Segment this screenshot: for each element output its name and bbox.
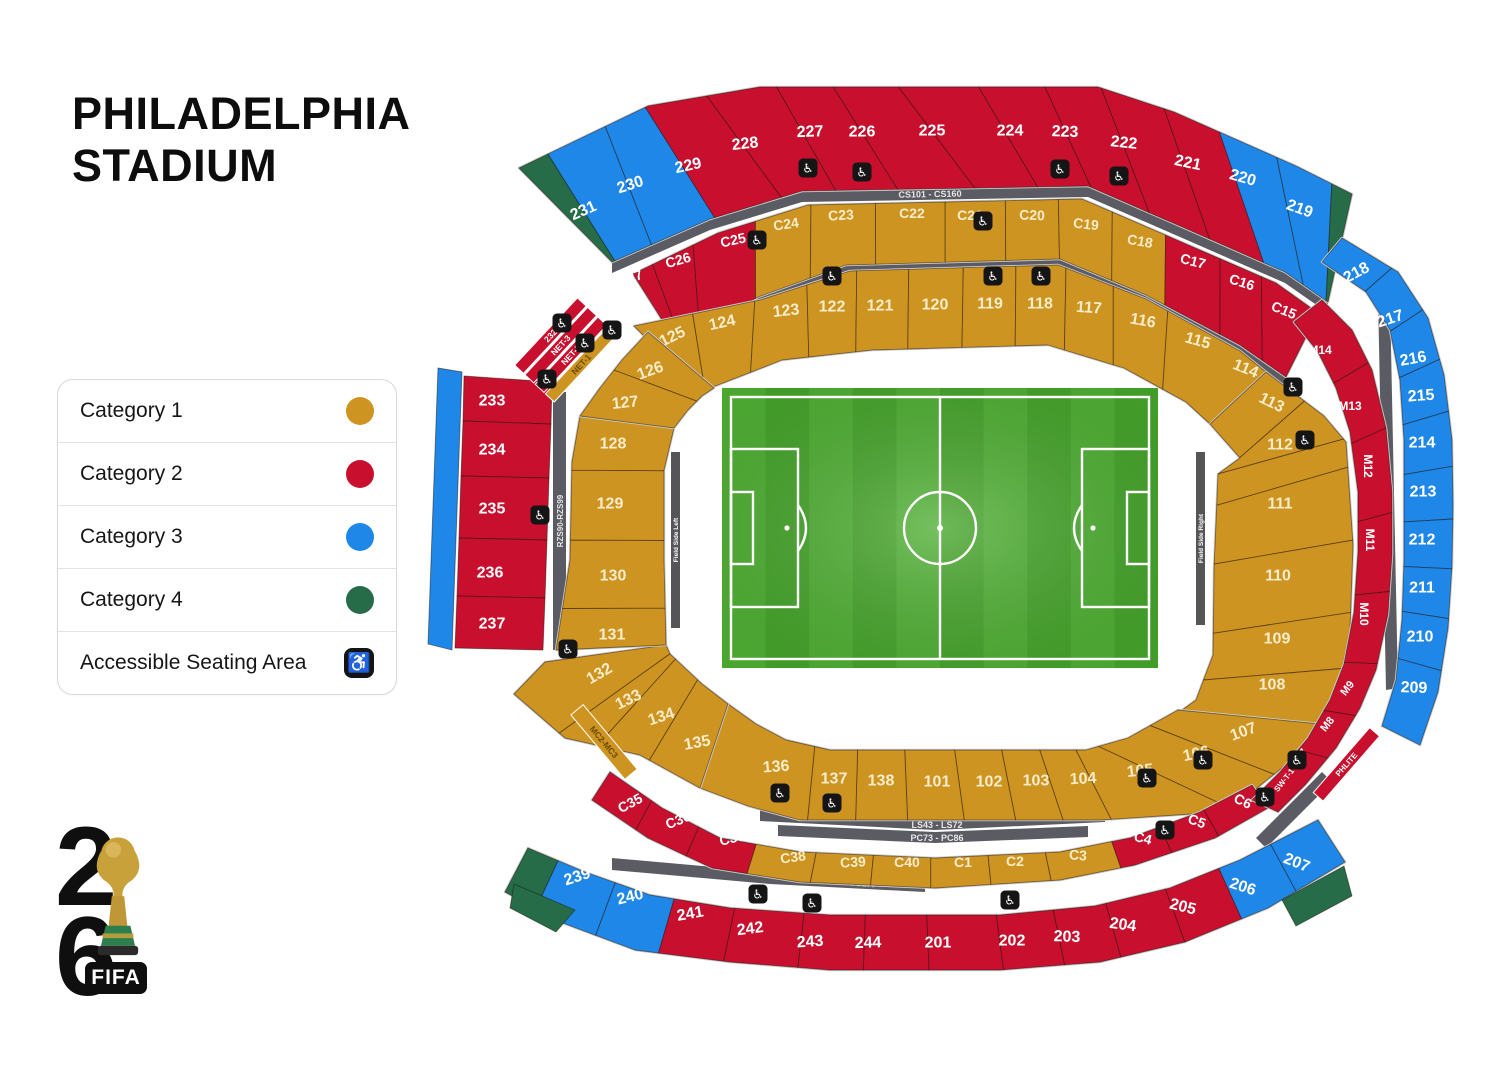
svg-text:♿: ♿ [1197, 753, 1208, 768]
section-label: 242 [736, 919, 765, 939]
accessible-seating-icon: ♿ [559, 640, 578, 659]
section-label: M10 [1357, 602, 1371, 626]
section-label: 130 [600, 568, 627, 585]
svg-text:♿: ♿ [1141, 771, 1152, 786]
svg-text:♿: ♿ [826, 269, 837, 284]
legend-item-category-3: Category 3 [58, 506, 396, 569]
legend-label: Category 3 [80, 525, 183, 549]
section-label: 227 [796, 123, 823, 141]
section-label: 101 [924, 774, 951, 791]
section-label: 222 [1110, 133, 1138, 153]
legend-label: Category 4 [80, 588, 183, 612]
section-label: C3 [1069, 846, 1088, 863]
accessible-seating-icon: ♿ [1284, 378, 1303, 397]
accessible-seating-icon: ♿ [1110, 167, 1129, 186]
svg-text:♿: ♿ [987, 269, 998, 284]
accessible-seating-icon: ♿ [1194, 751, 1213, 770]
section-label: 233 [479, 393, 506, 410]
accessible-seating-icon: ♿ [1156, 821, 1175, 840]
section-label: M14 [1308, 343, 1332, 357]
legend-item-category-2: Category 2 [58, 443, 396, 506]
legend-item-category-4: Category 4 [58, 569, 396, 632]
section-label: 104 [1069, 770, 1097, 788]
section-M11[interactable] [1355, 513, 1392, 596]
section-label: 214 [1409, 435, 1436, 452]
accessible-seating-icon: ♿ [803, 894, 822, 913]
accessible-seating-icon: ♿ [823, 794, 842, 813]
section-label: 212 [1409, 532, 1436, 549]
legend-item-accessible: Accessible Seating Area ♿ [58, 632, 396, 694]
section-label: 128 [600, 436, 627, 453]
section-label: 120 [922, 297, 949, 314]
accessible-seating-icon: ♿ [771, 784, 790, 803]
svg-text:♿: ♿ [1035, 269, 1046, 284]
accessible-seating-icon: ♿ [576, 334, 595, 353]
legend-label: Category 2 [80, 462, 183, 486]
section-label: Field Side Right [1198, 513, 1205, 563]
wheelchair-icon: ♿ [344, 648, 374, 678]
svg-text:♿: ♿ [1159, 823, 1170, 838]
category-4-swatch [346, 586, 374, 614]
svg-text:♿: ♿ [579, 336, 590, 351]
accessible-seating-icon: ♿ [1138, 769, 1157, 788]
accessible-seating-icon: ♿ [538, 370, 557, 389]
section-label: 127 [611, 393, 639, 413]
section-label: C40 [894, 854, 920, 870]
section-label: 234 [479, 442, 506, 459]
svg-text:♿: ♿ [774, 786, 785, 801]
section-label: 243 [796, 933, 824, 952]
section-label: 111 [1268, 496, 1293, 513]
svg-text:♿: ♿ [534, 508, 545, 523]
section-label: 117 [1075, 299, 1102, 318]
section-label: 129 [597, 496, 624, 513]
accessible-seating-icon: ♿ [749, 885, 768, 904]
svg-text:♿: ♿ [1113, 169, 1124, 184]
section-label: M12 [1361, 454, 1375, 478]
svg-text:♿: ♿ [1291, 753, 1302, 768]
section-label: PC73 - PC86 [910, 833, 963, 843]
section-label: 215 [1407, 387, 1435, 406]
section-label: 213 [1410, 484, 1437, 501]
accessible-seating-icon: ♿ [748, 231, 767, 250]
svg-text:♿: ♿ [802, 161, 813, 176]
accessible-seating-icon: ♿ [531, 506, 550, 525]
section-label: M11 [1363, 529, 1377, 552]
section-label: C22 [899, 205, 925, 221]
section-label: 138 [868, 773, 895, 790]
section-label: 211 [1409, 580, 1435, 597]
section-label: C1 [954, 854, 972, 870]
svg-text:♿: ♿ [562, 642, 573, 657]
svg-text:♿: ♿ [1299, 433, 1310, 448]
section-label: 119 [977, 296, 1003, 313]
section-label: 136 [762, 758, 790, 777]
accessible-seating-icon: ♿ [553, 314, 572, 333]
category-2-swatch [346, 460, 374, 488]
svg-text:♿: ♿ [826, 796, 837, 811]
accessible-seating-icon: ♿ [1296, 431, 1315, 450]
accessible-seating-icon: ♿ [984, 267, 1003, 286]
legend-label: Category 1 [80, 399, 183, 423]
section-label: 244 [854, 934, 881, 952]
section-label: 223 [1051, 123, 1078, 141]
section-label: 109 [1264, 631, 1291, 648]
svg-text:♿: ♿ [752, 887, 763, 902]
section-label: C39 [840, 853, 867, 870]
page-title-line1: PHILADELPHIA [72, 88, 411, 140]
section-label: 102 [976, 774, 1003, 791]
svg-text:♿: ♿ [806, 896, 817, 911]
section-label: M13 [1338, 399, 1362, 413]
section-label: 202 [999, 933, 1026, 950]
accessible-seating-icon: ♿ [1051, 160, 1070, 179]
section-label: 226 [849, 124, 876, 141]
legend-label: Accessible Seating Area [80, 651, 306, 675]
accessible-seating-icon: ♿ [823, 267, 842, 286]
svg-text:♿: ♿ [1287, 380, 1298, 395]
soccer-field [722, 388, 1159, 668]
section-label: C20 [1019, 206, 1045, 223]
fifa-26-logo: 2 6 FIFA [55, 822, 195, 1022]
section-label: 110 [1265, 568, 1291, 585]
section-label: 209 [1400, 679, 1427, 697]
section-234[interactable] [461, 421, 551, 478]
section-label: 137 [821, 771, 848, 788]
section-label: C2 [1006, 853, 1024, 869]
accessible-seating-icon: ♿ [1032, 267, 1051, 286]
section-label: RZS90-RZS99 [556, 494, 565, 547]
svg-text:♿: ♿ [751, 233, 762, 248]
category-1-swatch [346, 397, 374, 425]
svg-text:♿: ♿ [541, 372, 552, 387]
section-label: 236 [477, 565, 504, 582]
accessible-seating-icon: ♿ [853, 163, 872, 182]
section-label: 123 [772, 301, 800, 321]
section-label: 121 [867, 298, 894, 315]
category-3-swatch [346, 523, 374, 551]
accessible-seating-icon: ♿ [1256, 788, 1275, 807]
section-label: 228 [731, 134, 759, 154]
svg-text:♿: ♿ [1004, 893, 1015, 908]
svg-text:♿: ♿ [1259, 790, 1270, 805]
accessible-seating-icon: ♿ [1001, 891, 1020, 910]
section-label: 122 [819, 299, 846, 316]
svg-text:♿: ♿ [1054, 162, 1065, 177]
section-label: 224 [997, 123, 1024, 140]
section-label: 103 [1023, 773, 1050, 790]
section-label: 201 [925, 935, 952, 952]
legend: Category 1 Category 2 Category 3 Categor… [57, 379, 397, 695]
accessible-seating-icon: ♿ [799, 159, 818, 178]
section-label: 108 [1259, 677, 1286, 694]
svg-text:♿: ♿ [556, 316, 567, 331]
accessible-seating-icon: ♿ [1288, 751, 1307, 770]
fifa-wordmark: FIFA [85, 962, 147, 994]
section-242[interactable] [724, 908, 805, 967]
section-label: 131 [599, 627, 626, 644]
svg-text:♿: ♿ [977, 214, 988, 229]
svg-text:♿: ♿ [606, 323, 617, 338]
accessible-seating-icon: ♿ [603, 321, 622, 340]
section-label: 237 [479, 616, 506, 633]
section-label: C23 [828, 206, 855, 223]
accessible-seating-icon: ♿ [974, 212, 993, 231]
legend-item-category-1: Category 1 [58, 380, 396, 443]
section-label: 203 [1053, 928, 1080, 946]
section-label: LS43 - LS72 [911, 820, 962, 830]
section-label: 118 [1027, 296, 1053, 313]
page-title-line2: STADIUM [72, 140, 411, 192]
section-label: C19 [1072, 215, 1099, 234]
svg-text:♿: ♿ [856, 165, 867, 180]
section-label: 225 [919, 123, 946, 140]
page-title: PHILADELPHIA STADIUM [72, 88, 411, 192]
section-label: 235 [479, 501, 506, 518]
world-cup-trophy-icon [87, 834, 149, 974]
section-label: 210 [1407, 629, 1434, 646]
section-label: Field Side Left [673, 517, 680, 562]
section-label: 112 [1267, 437, 1293, 454]
